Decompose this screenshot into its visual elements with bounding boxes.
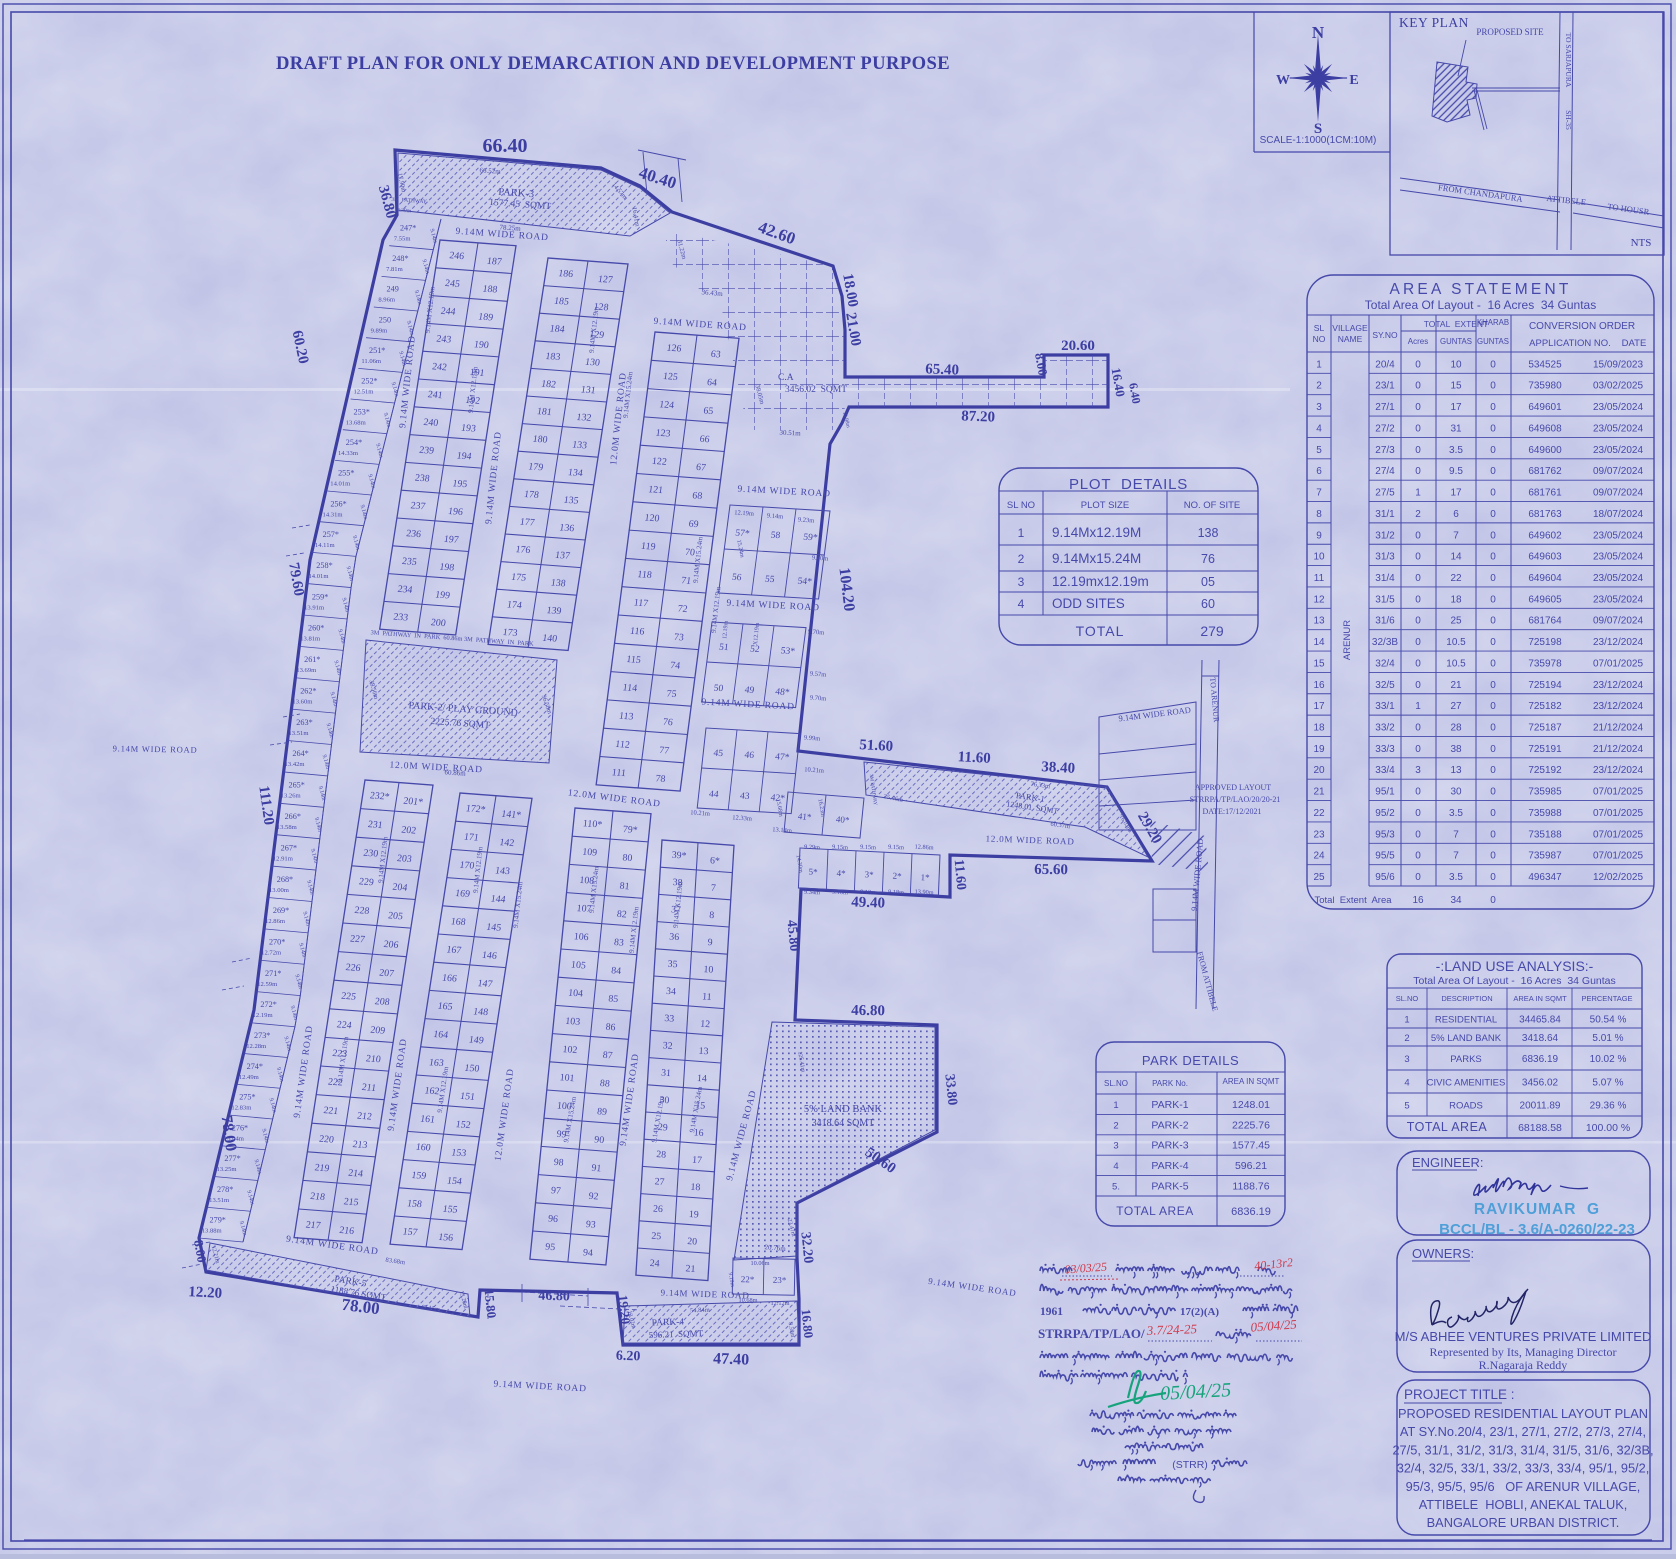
svg-text:247*: 247* bbox=[400, 223, 416, 232]
svg-text:170: 170 bbox=[459, 860, 475, 872]
svg-text:3: 3 bbox=[1404, 1054, 1409, 1065]
svg-text:16: 16 bbox=[1313, 680, 1325, 691]
svg-text:261*: 261* bbox=[304, 655, 320, 664]
svg-text:21: 21 bbox=[1450, 680, 1462, 691]
svg-text:5: 5 bbox=[1316, 445, 1322, 456]
svg-text:12.12m: 12.12m bbox=[770, 1300, 789, 1307]
svg-text:38.40: 38.40 bbox=[1041, 759, 1076, 777]
svg-text:TOTAL AREA: TOTAL AREA bbox=[1116, 1204, 1193, 1218]
svg-text:03/02/2025: 03/02/2025 bbox=[1593, 381, 1643, 392]
svg-text:34: 34 bbox=[666, 986, 677, 998]
svg-text:33/4: 33/4 bbox=[1375, 765, 1395, 776]
svg-text:0: 0 bbox=[1415, 359, 1421, 370]
svg-text:TO SARJAPURA: TO SARJAPURA bbox=[1564, 33, 1573, 88]
svg-text:239: 239 bbox=[418, 445, 434, 457]
svg-text:55: 55 bbox=[764, 574, 775, 586]
svg-text:VILLAGE: VILLAGE bbox=[1332, 323, 1368, 333]
svg-text:R.Nagaraja Reddy: R.Nagaraja Reddy bbox=[1479, 1358, 1568, 1372]
svg-text:0: 0 bbox=[1415, 466, 1421, 477]
svg-text:9.23m: 9.23m bbox=[798, 516, 815, 524]
svg-text:1248.01: 1248.01 bbox=[1232, 1099, 1270, 1111]
svg-text:273*: 273* bbox=[254, 1031, 270, 1040]
svg-text:9.15m: 9.15m bbox=[888, 844, 904, 852]
svg-text:94: 94 bbox=[582, 1247, 593, 1259]
svg-text:156: 156 bbox=[437, 1232, 453, 1244]
svg-text:178: 178 bbox=[523, 489, 539, 501]
svg-text:110*: 110* bbox=[582, 818, 602, 830]
svg-text:27: 27 bbox=[654, 1176, 665, 1188]
svg-text:NO. OF SITE: NO. OF SITE bbox=[1184, 500, 1240, 511]
svg-text:13.90m: 13.90m bbox=[914, 889, 934, 897]
svg-text:65.40: 65.40 bbox=[925, 361, 959, 378]
svg-text:246: 246 bbox=[449, 250, 465, 262]
svg-text:127: 127 bbox=[597, 274, 613, 286]
svg-text:177: 177 bbox=[519, 517, 535, 529]
svg-text:SL.NO: SL.NO bbox=[1104, 1079, 1128, 1088]
svg-text:184: 184 bbox=[549, 323, 565, 335]
svg-text:17: 17 bbox=[1313, 701, 1325, 712]
svg-text:50: 50 bbox=[713, 683, 724, 695]
svg-text:KHARAB: KHARAB bbox=[1477, 318, 1509, 327]
svg-text:69: 69 bbox=[688, 519, 699, 531]
svg-text:PARK No.: PARK No. bbox=[1152, 1079, 1188, 1088]
svg-text:14.11m: 14.11m bbox=[315, 542, 336, 549]
svg-text:Total Area Of Layout - 16 Acr: Total Area Of Layout - 16 Acres 34 Gunta… bbox=[1365, 298, 1596, 312]
svg-text:208: 208 bbox=[374, 996, 390, 1008]
svg-text:95/3, 95/5, 95/6 OF ARENUR V: 95/3, 95/5, 95/6 OF ARENUR VILLAGE, bbox=[1406, 1479, 1641, 1494]
svg-text:71: 71 bbox=[681, 575, 692, 587]
svg-text:12/02/2025: 12/02/2025 bbox=[1593, 872, 1643, 883]
svg-text:28: 28 bbox=[656, 1149, 667, 1161]
svg-text:240: 240 bbox=[423, 417, 439, 429]
svg-text:36: 36 bbox=[669, 931, 680, 943]
svg-text:185: 185 bbox=[553, 296, 569, 308]
svg-text:43: 43 bbox=[739, 792, 750, 803]
svg-text:144: 144 bbox=[490, 893, 506, 905]
svg-text:132: 132 bbox=[576, 412, 592, 424]
svg-text:89: 89 bbox=[597, 1106, 608, 1118]
svg-text:AT SY.No.20/4, 23/1, 27/1, 27/: AT SY.No.20/4, 23/1, 27/1, 27/2, 27/3, 2… bbox=[1400, 1424, 1646, 1439]
svg-text:179: 179 bbox=[528, 461, 544, 473]
svg-text:10.21m: 10.21m bbox=[804, 766, 824, 774]
svg-text:216: 216 bbox=[339, 1225, 355, 1237]
svg-text:13.51m: 13.51m bbox=[209, 1197, 230, 1204]
svg-text:58: 58 bbox=[770, 530, 781, 542]
svg-text:114: 114 bbox=[622, 682, 638, 694]
svg-text:0: 0 bbox=[1490, 423, 1496, 434]
svg-text:7: 7 bbox=[1316, 488, 1322, 499]
svg-text:1: 1 bbox=[1113, 1100, 1118, 1111]
svg-text:225: 225 bbox=[340, 991, 356, 1003]
svg-text:96: 96 bbox=[548, 1213, 559, 1225]
svg-text:187: 187 bbox=[486, 256, 502, 268]
svg-text:725198: 725198 bbox=[1528, 637, 1562, 648]
svg-text:649603: 649603 bbox=[1528, 552, 1562, 563]
svg-text:NO: NO bbox=[1313, 334, 1326, 344]
svg-text:195: 195 bbox=[452, 478, 468, 490]
svg-text:PARK DETAILS: PARK DETAILS bbox=[1142, 1053, 1239, 1068]
svg-text:11.06m: 11.06m bbox=[361, 358, 382, 365]
svg-text:07/01/2025: 07/01/2025 bbox=[1593, 829, 1643, 840]
svg-text:0: 0 bbox=[1490, 722, 1496, 733]
svg-text:12.86m: 12.86m bbox=[265, 918, 286, 925]
svg-text:92: 92 bbox=[588, 1191, 599, 1203]
svg-text:77: 77 bbox=[659, 745, 670, 757]
svg-text:735988: 735988 bbox=[1528, 808, 1562, 819]
svg-text:113: 113 bbox=[618, 711, 634, 723]
svg-text:07/01/2025: 07/01/2025 bbox=[1593, 851, 1643, 862]
svg-text:681761: 681761 bbox=[1528, 488, 1562, 499]
svg-text:14.31m: 14.31m bbox=[323, 511, 344, 518]
svg-text:271*: 271* bbox=[265, 969, 281, 978]
svg-text:2225.76: 2225.76 bbox=[1232, 1119, 1270, 1131]
svg-text:66: 66 bbox=[699, 434, 710, 446]
svg-text:193: 193 bbox=[460, 423, 476, 435]
svg-text:09/07/2024: 09/07/2024 bbox=[1593, 488, 1643, 499]
svg-text:13.81m: 13.81m bbox=[300, 636, 321, 643]
svg-text:5.01 %: 5.01 % bbox=[1592, 1033, 1623, 1044]
svg-text:85: 85 bbox=[608, 993, 619, 1005]
svg-text:145: 145 bbox=[486, 922, 502, 934]
svg-text:126: 126 bbox=[666, 343, 682, 355]
svg-text:164: 164 bbox=[433, 1029, 449, 1041]
svg-text:0: 0 bbox=[1490, 765, 1496, 776]
svg-text:NTS: NTS bbox=[1631, 237, 1652, 249]
svg-text:76: 76 bbox=[662, 717, 673, 729]
svg-text:1*: 1* bbox=[920, 872, 930, 882]
svg-text:238: 238 bbox=[414, 473, 430, 485]
svg-text:158: 158 bbox=[406, 1198, 422, 1210]
svg-text:134: 134 bbox=[567, 467, 583, 479]
svg-text:20/4: 20/4 bbox=[1375, 359, 1395, 370]
svg-text:47*: 47* bbox=[775, 752, 791, 763]
svg-text:214: 214 bbox=[347, 1168, 363, 1180]
svg-text:28: 28 bbox=[1450, 722, 1462, 733]
svg-text:649608: 649608 bbox=[1528, 423, 1562, 434]
svg-text:83: 83 bbox=[613, 937, 624, 949]
svg-text:3.5: 3.5 bbox=[1449, 872, 1463, 883]
svg-text:3418.64 SQMT: 3418.64 SQMT bbox=[812, 1118, 875, 1129]
svg-text:12.83m: 12.83m bbox=[231, 1105, 252, 1112]
svg-text:253*: 253* bbox=[354, 407, 370, 416]
svg-text:25: 25 bbox=[651, 1231, 662, 1243]
svg-text:204: 204 bbox=[392, 882, 408, 894]
svg-text:136: 136 bbox=[559, 522, 575, 534]
svg-text:203: 203 bbox=[396, 853, 412, 865]
svg-text:GUNTAS: GUNTAS bbox=[1477, 337, 1509, 346]
svg-text:95/5: 95/5 bbox=[1375, 851, 1395, 862]
svg-text:3: 3 bbox=[1415, 765, 1421, 776]
svg-text:3418.64: 3418.64 bbox=[1522, 1033, 1559, 1044]
svg-text:165: 165 bbox=[437, 1001, 453, 1013]
svg-text:4: 4 bbox=[1018, 597, 1025, 611]
svg-text:14.33m: 14.33m bbox=[338, 450, 359, 457]
svg-text:23/05/2024: 23/05/2024 bbox=[1593, 573, 1643, 584]
svg-text:270*: 270* bbox=[269, 938, 285, 947]
svg-text:272*: 272* bbox=[260, 1000, 276, 1009]
svg-text:14.01m: 14.01m bbox=[330, 481, 351, 488]
svg-text:ATTIBELE HOBLI, ANEKAL TALUK,: ATTIBELE HOBLI, ANEKAL TALUK, bbox=[1419, 1497, 1628, 1512]
svg-text:735980: 735980 bbox=[1528, 381, 1562, 392]
svg-text:12.86m: 12.86m bbox=[914, 844, 934, 852]
svg-text:9.15m: 9.15m bbox=[832, 844, 848, 852]
svg-text:182: 182 bbox=[540, 379, 556, 391]
svg-text:4: 4 bbox=[1404, 1078, 1409, 1089]
svg-text:681763: 681763 bbox=[1528, 509, 1562, 520]
svg-text:12.91m: 12.91m bbox=[273, 855, 294, 862]
svg-text:C.A: C.A bbox=[778, 373, 794, 383]
svg-text:TOTAL: TOTAL bbox=[1076, 623, 1125, 639]
svg-text:148: 148 bbox=[472, 1006, 488, 1018]
svg-text:12.19mx12.19m: 12.19mx12.19m bbox=[1052, 574, 1149, 589]
svg-text:141*: 141* bbox=[501, 809, 522, 821]
svg-text:6*: 6* bbox=[710, 855, 721, 867]
svg-text:DESCRIPTION: DESCRIPTION bbox=[1441, 994, 1492, 1003]
svg-text:168: 168 bbox=[450, 916, 466, 928]
svg-text:735978: 735978 bbox=[1528, 658, 1562, 669]
svg-text:KEY PLAN: KEY PLAN bbox=[1399, 15, 1469, 30]
svg-text:23/1: 23/1 bbox=[1375, 381, 1395, 392]
svg-text:49: 49 bbox=[744, 685, 755, 697]
svg-text:160: 160 bbox=[415, 1142, 431, 1154]
svg-text:13.14m: 13.14m bbox=[772, 826, 792, 834]
svg-text:21/12/2024: 21/12/2024 bbox=[1593, 722, 1643, 733]
svg-text:BANGALORE URBAN DISTRICT.: BANGALORE URBAN DISTRICT. bbox=[1427, 1515, 1620, 1530]
svg-text:54.84m: 54.84m bbox=[690, 1307, 710, 1315]
svg-text:649604: 649604 bbox=[1528, 573, 1562, 584]
svg-text:13.68m: 13.68m bbox=[346, 419, 367, 426]
svg-text:210: 210 bbox=[365, 1053, 381, 1065]
svg-text:23/05/2024: 23/05/2024 bbox=[1593, 594, 1643, 605]
svg-text:0: 0 bbox=[1415, 851, 1421, 862]
svg-text:111: 111 bbox=[611, 767, 626, 779]
svg-text:27/5, 31/1, 31/2, 31/3, 31/4,: 27/5, 31/1, 31/2, 31/3, 31/4, 31/5, 31/6… bbox=[1392, 1442, 1653, 1457]
svg-text:5% LAND BANK: 5% LAND BANK bbox=[1431, 1033, 1502, 1044]
svg-text:31: 31 bbox=[661, 1067, 672, 1079]
svg-text:10.5: 10.5 bbox=[1446, 658, 1466, 669]
svg-text:166: 166 bbox=[441, 973, 457, 985]
svg-text:131: 131 bbox=[580, 384, 596, 396]
svg-text:0: 0 bbox=[1415, 594, 1421, 605]
svg-text:11.60: 11.60 bbox=[957, 749, 991, 767]
svg-text:14: 14 bbox=[697, 1073, 708, 1085]
svg-text:12.49m: 12.49m bbox=[239, 1074, 260, 1081]
svg-text:496347: 496347 bbox=[1528, 872, 1562, 883]
svg-text:GUNTAS: GUNTAS bbox=[1440, 337, 1472, 346]
svg-text:152: 152 bbox=[455, 1119, 471, 1131]
svg-text:2: 2 bbox=[1415, 509, 1421, 520]
svg-text:3456.02: 3456.02 bbox=[1522, 1078, 1559, 1089]
svg-text:142: 142 bbox=[499, 837, 515, 849]
svg-text:12.51m: 12.51m bbox=[353, 389, 374, 396]
svg-text:9.18m: 9.18m bbox=[832, 889, 848, 897]
svg-text:265*: 265* bbox=[288, 781, 304, 790]
svg-text:2: 2 bbox=[1316, 381, 1322, 392]
svg-text:194: 194 bbox=[456, 450, 472, 462]
svg-text:7: 7 bbox=[1453, 829, 1459, 840]
svg-text:215: 215 bbox=[343, 1196, 359, 1208]
svg-text:241: 241 bbox=[427, 389, 443, 401]
svg-text:19: 19 bbox=[689, 1209, 700, 1221]
svg-text:95: 95 bbox=[545, 1242, 556, 1254]
svg-text:17: 17 bbox=[1450, 488, 1462, 499]
svg-text:231: 231 bbox=[367, 819, 383, 831]
svg-text:17: 17 bbox=[692, 1154, 703, 1166]
svg-text:PARK-1: PARK-1 bbox=[1151, 1099, 1188, 1111]
svg-text:31/5: 31/5 bbox=[1375, 594, 1395, 605]
svg-text:9.57m: 9.57m bbox=[810, 670, 827, 678]
svg-text:STRRPA/TP/LAO/: STRRPA/TP/LAO/ bbox=[1038, 1326, 1145, 1341]
svg-text:262*: 262* bbox=[300, 686, 316, 695]
svg-text:27/5: 27/5 bbox=[1375, 488, 1395, 499]
svg-text:13.25m: 13.25m bbox=[217, 1166, 238, 1173]
svg-text:53*: 53* bbox=[780, 645, 796, 657]
svg-text:233: 233 bbox=[393, 612, 409, 624]
svg-text:APPROVED LAYOUT: APPROVED LAYOUT bbox=[1195, 783, 1271, 792]
svg-text:16: 16 bbox=[1412, 895, 1424, 906]
svg-text:13.58m: 13.58m bbox=[277, 824, 298, 831]
svg-text:244: 244 bbox=[440, 306, 456, 318]
svg-text:32/5: 32/5 bbox=[1375, 680, 1395, 691]
svg-text:18: 18 bbox=[1313, 722, 1325, 733]
svg-text:681762: 681762 bbox=[1528, 466, 1562, 477]
svg-text:183: 183 bbox=[545, 351, 561, 363]
svg-text:Represented by Its, Managing D: Represented by Its, Managing Director bbox=[1430, 1345, 1617, 1359]
svg-text:32: 32 bbox=[662, 1040, 673, 1052]
svg-text:151: 151 bbox=[459, 1091, 475, 1103]
svg-text:OWNERS:: OWNERS: bbox=[1412, 1246, 1474, 1261]
svg-text:93: 93 bbox=[585, 1219, 596, 1231]
svg-text:596.21: 596.21 bbox=[1235, 1160, 1267, 1172]
svg-text:13.00m: 13.00m bbox=[269, 887, 290, 894]
svg-text:95/6: 95/6 bbox=[1375, 872, 1395, 883]
svg-text:9.70m: 9.70m bbox=[810, 694, 827, 702]
svg-text:0: 0 bbox=[1415, 445, 1421, 456]
svg-text:119: 119 bbox=[640, 541, 656, 553]
svg-text:0: 0 bbox=[1490, 402, 1496, 413]
svg-text:73: 73 bbox=[673, 632, 684, 644]
svg-text:10.21m: 10.21m bbox=[690, 809, 710, 817]
svg-text:47.40: 47.40 bbox=[713, 1350, 750, 1368]
svg-text:24: 24 bbox=[649, 1258, 660, 1270]
svg-text:198: 198 bbox=[439, 562, 455, 574]
svg-text:74: 74 bbox=[670, 660, 681, 672]
svg-text:6: 6 bbox=[1453, 509, 1459, 520]
svg-text:12.19m: 12.19m bbox=[253, 1012, 274, 1019]
svg-text:31: 31 bbox=[1450, 423, 1462, 434]
svg-text:21/12/2024: 21/12/2024 bbox=[1593, 744, 1643, 755]
svg-text:0: 0 bbox=[1490, 359, 1496, 370]
svg-text:27: 27 bbox=[1450, 701, 1462, 712]
svg-text:224: 224 bbox=[336, 1019, 352, 1031]
svg-text:33: 33 bbox=[664, 1013, 675, 1025]
svg-text:133: 133 bbox=[571, 439, 587, 451]
svg-text:226: 226 bbox=[345, 962, 361, 974]
svg-text:6.20: 6.20 bbox=[616, 1349, 641, 1365]
svg-text:279: 279 bbox=[1200, 623, 1224, 639]
svg-text:80: 80 bbox=[622, 852, 633, 864]
svg-text:7: 7 bbox=[1453, 530, 1459, 541]
svg-text:29.36 %: 29.36 % bbox=[1590, 1101, 1627, 1112]
svg-text:219: 219 bbox=[314, 1162, 330, 1174]
svg-text:25: 25 bbox=[1450, 616, 1462, 627]
svg-text:2: 2 bbox=[1113, 1120, 1118, 1131]
svg-text:155: 155 bbox=[442, 1204, 458, 1216]
svg-text:252*: 252* bbox=[361, 377, 377, 386]
svg-text:W: W bbox=[1276, 73, 1290, 88]
svg-text:18: 18 bbox=[1450, 594, 1462, 605]
svg-text:234: 234 bbox=[397, 584, 413, 596]
svg-text:79*: 79* bbox=[622, 824, 638, 836]
svg-text:172*: 172* bbox=[465, 803, 486, 815]
svg-text:169: 169 bbox=[454, 888, 470, 900]
svg-text:56: 56 bbox=[731, 572, 742, 584]
svg-text:227: 227 bbox=[349, 934, 365, 946]
svg-text:2*: 2* bbox=[892, 871, 902, 881]
svg-text:19: 19 bbox=[1313, 744, 1325, 755]
svg-text:121: 121 bbox=[648, 484, 664, 496]
svg-text:725182: 725182 bbox=[1528, 701, 1562, 712]
svg-text:201*: 201* bbox=[403, 796, 424, 808]
svg-text:0: 0 bbox=[1490, 509, 1496, 520]
svg-text:5.07 %: 5.07 % bbox=[1592, 1078, 1623, 1089]
svg-text:0: 0 bbox=[1415, 722, 1421, 733]
svg-text:649602: 649602 bbox=[1528, 530, 1562, 541]
svg-text:23/12/2024: 23/12/2024 bbox=[1593, 765, 1643, 776]
svg-text:31/6: 31/6 bbox=[1375, 616, 1395, 627]
svg-text:1: 1 bbox=[1404, 1015, 1409, 1026]
svg-text:66.52m: 66.52m bbox=[479, 166, 501, 175]
svg-text:649601: 649601 bbox=[1528, 402, 1562, 413]
svg-text:82: 82 bbox=[616, 909, 627, 921]
svg-text:10: 10 bbox=[1450, 359, 1462, 370]
svg-text:9.29m: 9.29m bbox=[804, 844, 820, 852]
svg-text:PARK-2: PARK-2 bbox=[1151, 1119, 1188, 1131]
svg-text:248*: 248* bbox=[392, 254, 408, 263]
svg-text:175: 175 bbox=[510, 572, 526, 584]
svg-text:13.91m: 13.91m bbox=[304, 604, 325, 611]
svg-text:PLOT SIZE: PLOT SIZE bbox=[1081, 500, 1129, 511]
svg-text:6: 6 bbox=[1316, 466, 1322, 477]
svg-text:1: 1 bbox=[1018, 526, 1025, 540]
svg-text:07/01/2025: 07/01/2025 bbox=[1593, 658, 1643, 669]
svg-text:735987: 735987 bbox=[1528, 851, 1562, 862]
svg-text:3: 3 bbox=[1018, 575, 1025, 589]
svg-text:255*: 255* bbox=[338, 469, 354, 478]
svg-text:237: 237 bbox=[410, 500, 426, 512]
svg-text:109: 109 bbox=[582, 847, 598, 859]
svg-text:41*: 41* bbox=[797, 811, 812, 822]
svg-text:40*: 40* bbox=[835, 814, 850, 825]
svg-text:DATE:17/12/2021: DATE:17/12/2021 bbox=[1202, 807, 1261, 816]
svg-text:196: 196 bbox=[447, 506, 463, 518]
svg-text:13.60m: 13.60m bbox=[292, 698, 313, 705]
svg-text:3.5: 3.5 bbox=[1449, 445, 1463, 456]
svg-text:10.02 %: 10.02 % bbox=[1590, 1054, 1627, 1065]
svg-text:31/1: 31/1 bbox=[1375, 509, 1395, 520]
svg-text:242: 242 bbox=[431, 361, 447, 373]
svg-text:228: 228 bbox=[354, 905, 370, 917]
svg-text:NAME: NAME bbox=[1338, 334, 1363, 344]
svg-text:251*: 251* bbox=[369, 346, 385, 355]
svg-text:146: 146 bbox=[481, 950, 497, 962]
svg-text:9.89m: 9.89m bbox=[371, 327, 389, 334]
svg-text:30.51m: 30.51m bbox=[779, 428, 801, 437]
svg-text:13.88m: 13.88m bbox=[202, 1228, 223, 1235]
svg-text:97: 97 bbox=[550, 1185, 561, 1197]
svg-text:PROPOSED RESIDENTIAL LAYOUT PL: PROPOSED RESIDENTIAL LAYOUT PLAN bbox=[1398, 1406, 1648, 1421]
svg-text:8.96m: 8.96m bbox=[378, 297, 396, 304]
